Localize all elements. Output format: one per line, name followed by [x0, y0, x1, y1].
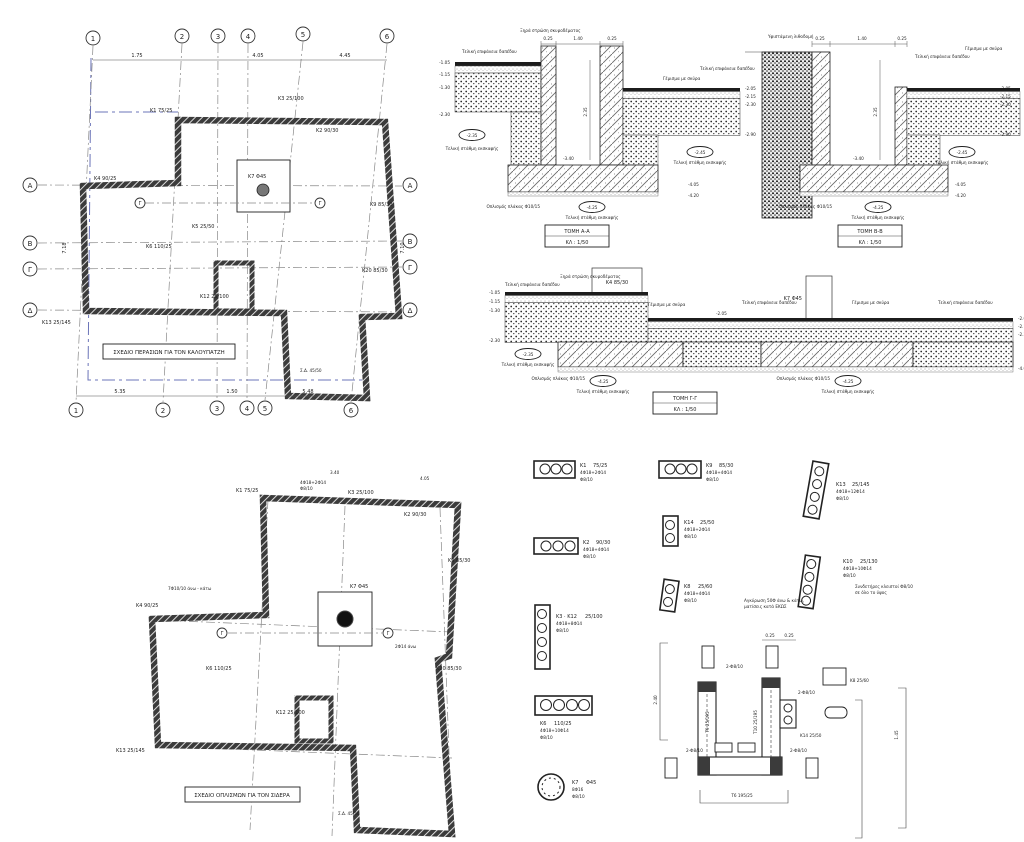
- rebar-callout: 4Φ18+2Φ14: [300, 480, 326, 485]
- level-value: -4.25: [598, 379, 609, 384]
- dim-label: 7.18: [62, 242, 68, 253]
- col-section-k3-k12: Κ3 · Κ12 25/100 4Φ18+8Φ14 Φ8/10: [535, 605, 603, 669]
- col-bars: 4Φ18+8Φ14: [556, 621, 582, 626]
- col-size: 25/145: [852, 482, 870, 488]
- elev-label: -1.05: [489, 290, 500, 295]
- gravel-fill: [648, 329, 1013, 343]
- dim-label: 2.40: [653, 695, 658, 705]
- leader-text: Τελική στάθμη εκσκαφής: [576, 389, 630, 394]
- col-bars: 8Φ16: [572, 787, 584, 792]
- col-bars: 4Φ18+12Φ14: [836, 489, 865, 494]
- section-c: Κ4 85/30 Κ7 Φ45 -1.05 -1.15 -1.30 -2.30 …: [489, 268, 1024, 414]
- leader-text: Τελική στάθμη εκσκαφής: [673, 160, 727, 165]
- leader-text: Γέμισμα με σκύρα: [852, 300, 890, 305]
- col-bars: 4Φ18+4Φ14: [684, 591, 710, 596]
- col-bars: 4Φ18+2Φ14: [580, 470, 606, 475]
- leader-text: Τελική επιφάνεια δαπέδου: [699, 66, 755, 71]
- rebar-callout: 7Φ10/10 άνω - κάτω: [168, 586, 212, 591]
- stair-shaft-walls: [216, 263, 252, 311]
- section-title: ΤΟΜΗ Γ-Γ: [672, 396, 697, 402]
- top-dimension: 0.25 1.40 0.25: [812, 36, 907, 47]
- pit-wall-left: [812, 52, 830, 165]
- bedding-layer: [623, 92, 740, 99]
- lean-concrete: [508, 192, 658, 196]
- section-mark: Γ: [139, 201, 142, 207]
- col-section-k9: Κ9 85/30 4Φ18+4Φ14 Φ8/10: [659, 461, 733, 482]
- dim-label: 1.45: [894, 730, 899, 740]
- exterior-walls: [152, 498, 458, 834]
- column-label: Κ9 85/30: [448, 558, 470, 564]
- dim-label: 4.05: [252, 53, 263, 59]
- col-ties: Φ8/10: [684, 598, 697, 603]
- elev-label: -2.05: [745, 86, 756, 91]
- dim-label: 2.35: [873, 107, 878, 117]
- leader-text: Οπλισμός πλάκας Φ10/15: [486, 204, 540, 209]
- grid-label: 6: [385, 33, 390, 41]
- grid-label: 5: [301, 31, 305, 39]
- grid-lines: [155, 500, 452, 836]
- elev-label: -4.05: [955, 182, 966, 187]
- note-line: Αγκύρωση 50Φ άνω & κάτω,: [744, 598, 804, 603]
- formwork-plan: Γ Γ 1 2 3 4 5 6 1 2 3 4 5 6 Α Β Γ Δ Α Β …: [23, 27, 417, 417]
- elevation-marks-right: -2.05 -2.15 -2.30 -2.90: [745, 86, 756, 137]
- dim-label: 2.35: [583, 107, 588, 117]
- leader-text: Γέμισμα με σκύρα: [965, 46, 1003, 51]
- bedding-layer: [455, 66, 541, 73]
- col-ties: Φ8/10: [843, 573, 856, 578]
- lean-concrete: [558, 367, 1013, 372]
- note-line: Συνδετήρες κλειστοί Φ8/10: [855, 584, 913, 589]
- leader-text: Τελική στάθμη εκσκαφής: [445, 146, 499, 151]
- col-size: 25/50: [700, 520, 714, 526]
- elev-label: -1.30: [439, 85, 450, 90]
- elev-label: -2.30: [489, 338, 500, 343]
- column-above-k7: [806, 276, 832, 320]
- dim-label: 1.75: [131, 53, 142, 59]
- gravel-fill: [623, 135, 658, 165]
- column-label: Κ5 25/50: [192, 224, 214, 230]
- section-mark: Γ: [319, 201, 322, 207]
- col-section-k1: Κ1 75/25 4Φ18+2Φ14 Φ8/10: [534, 461, 607, 482]
- structural-drawing: Γ Γ 1 2 3 4 5 6 1 2 3 4 5 6 Α Β Γ Δ Α Β …: [0, 0, 1024, 842]
- elevation-marks-left: -1.05 -1.15 -1.30 -2.30: [489, 290, 500, 343]
- elev-label: -3.40: [853, 156, 864, 161]
- col-section-k6: Κ6 110/25 4Φ18+10Φ14 Φ8/10: [535, 696, 592, 740]
- column-label: Κ7 Φ45: [248, 174, 266, 180]
- foundation-slab: [800, 165, 948, 192]
- col-bars: 4Φ18+4Φ14: [706, 470, 732, 475]
- col-ties: Φ8/10: [540, 735, 553, 740]
- column-label: Κ6 110/25: [206, 666, 232, 672]
- section-title: ΤΟΜΗ Α-Α: [563, 229, 590, 235]
- column-label: Κ9 85/30: [370, 202, 392, 208]
- leader-text: Ξηρά στρώση σκυροδέματος: [520, 28, 581, 33]
- shaft-reinforcement-detail: Τ9 25/195 Τ10 25/195 Τ6 195/25 Κ8 25/60 …: [653, 633, 906, 838]
- property-boundary-line: [88, 58, 362, 380]
- grid-label: Γ: [28, 266, 32, 274]
- wall-label: Τ9 25/195: [705, 711, 710, 734]
- column-label: Κ20 85/30: [436, 666, 462, 672]
- col-section-k8: [660, 579, 679, 612]
- elev-label: -2.90: [1000, 132, 1011, 137]
- dim-label: 0.25: [765, 633, 775, 638]
- col-size: 25/60: [698, 584, 712, 590]
- section-scale: ΚΛ : 1/50: [674, 407, 697, 413]
- level-value: -2.35: [523, 352, 534, 357]
- level-value: -4.25: [587, 205, 598, 210]
- wall-label: Τ6 195/25: [730, 793, 753, 798]
- column-label: Κ12 25/100: [276, 710, 305, 716]
- section-scale: ΚΛ : 1/50: [566, 240, 589, 246]
- col-size: 25/130: [860, 559, 878, 565]
- col-size: 90/30: [596, 540, 610, 546]
- elev-label: -2.15: [1018, 324, 1024, 329]
- grid-label: 4: [246, 33, 251, 41]
- tie-label: 2-Φ8/10: [790, 748, 807, 753]
- round-column-k7: [257, 184, 269, 196]
- dim-note: Σ.Δ. 45/50: [338, 811, 360, 816]
- floor-finish-strip: [623, 88, 740, 92]
- col-ties: Φ8/10: [572, 794, 585, 799]
- leader-text: Υφιστάμενη λιθοδομή: [767, 34, 814, 39]
- plan-title: ΣΧΕΔΙΟ ΠΕΡΑΣΙΩΝ ΓΙΑ ΤΟΝ ΚΑΛΟΥΠΑΤΖΗ: [113, 350, 225, 356]
- level-value: -4.25: [873, 205, 884, 210]
- dim-label: 5.48: [302, 389, 313, 395]
- level-value: -2.45: [957, 150, 968, 155]
- note-line: ματίσεις κατά ΕΚΩΣ: [744, 604, 787, 609]
- grid-bubbles-left: Α Β Γ Δ: [23, 178, 37, 317]
- dim-label: 4.45: [339, 53, 350, 59]
- grid-label: Β: [28, 240, 33, 248]
- foundation-slab: [508, 165, 658, 192]
- level-value: -4.25: [843, 379, 854, 384]
- level-value: -2.45: [695, 150, 706, 155]
- leader-text: Οπλισμός πλάκας Φ10/15: [776, 376, 830, 381]
- col-name: Κ3 · Κ12: [556, 614, 577, 620]
- column-label: Κ7 Φ45: [350, 584, 368, 590]
- column-label: Κ8 25/60: [850, 678, 869, 683]
- col-size: 75/25: [593, 463, 607, 469]
- column-label: Κ6 110/25: [146, 244, 172, 250]
- gravel-fill: [623, 99, 740, 136]
- level-value: -2.35: [467, 133, 478, 138]
- grid-label: 4: [245, 405, 250, 413]
- grid-label: Δ: [408, 307, 413, 315]
- pit-wall-right: [600, 46, 623, 165]
- section-title: ΤΟΜΗ Β-Β: [856, 229, 883, 235]
- col-ties: Φ8/10: [556, 628, 569, 633]
- grid-label: 3: [216, 33, 220, 41]
- elev-label: -2.05: [716, 311, 727, 316]
- footing-gravel: [683, 342, 761, 367]
- wall-end-zone: [698, 682, 716, 692]
- leader-text: Τελική στάθμη εκσκαφής: [565, 215, 619, 220]
- top-dimension: 0.25 1.40 0.25: [541, 36, 623, 47]
- elev-label: -2.30: [745, 102, 756, 107]
- col-name: Κ9: [706, 463, 712, 469]
- elev-label: -2.05: [1000, 86, 1011, 91]
- col-size: 110/25: [554, 721, 572, 727]
- column-label: Κ2 90/30: [316, 128, 338, 134]
- dim-label: 0.25: [784, 633, 794, 638]
- col-name: Κ1: [580, 463, 586, 469]
- floor-finish-strip: [648, 318, 1013, 322]
- rebar-callout: Φ8/10: [300, 486, 313, 491]
- elevation-marks-right: -2.05 -2.15 -2.30 -4.05: [1018, 316, 1024, 371]
- section-mark: Γ: [387, 631, 390, 637]
- elev-label: -2.30: [1018, 332, 1024, 337]
- wall-end-zone: [698, 757, 710, 775]
- leader-text: Οπλισμός πλάκας Φ10/15: [778, 204, 832, 209]
- column-label: Κ14 25/50: [800, 733, 822, 738]
- col-ties: Φ8/10: [583, 554, 596, 559]
- footing-concrete: [558, 342, 683, 367]
- rebar-callouts: 4Φ18+2Φ14 Φ8/10 7Φ10/10 άνω - κάτω 2Φ14 …: [168, 470, 430, 816]
- column-label: Κ4 85/30: [606, 280, 628, 286]
- note-line: σε όλο το ύψος: [855, 590, 887, 595]
- lean-concrete: [800, 192, 948, 196]
- elev-label: -3.40: [563, 156, 574, 161]
- dim-label: 0.25: [607, 36, 617, 41]
- col-ties: Φ8/10: [706, 477, 719, 482]
- section-b: 0.25 1.40 0.25 2.35 Υφιστάμενη λιθοδομή …: [745, 34, 1020, 247]
- dim-label: 3.40: [330, 470, 340, 475]
- leader-text: Γέμισμα με σκύρα: [663, 76, 701, 81]
- grid-label: 5: [263, 405, 267, 413]
- col-section-k2: Κ2 90/30 4Φ18+4Φ14 Φ8/10: [534, 538, 610, 559]
- dim-label: 5.35: [114, 389, 125, 395]
- wall-end-zone: [770, 757, 782, 775]
- leader-text: Οπλισμός πλάκας Φ10/15: [531, 376, 585, 381]
- section-mark: Γ: [221, 631, 224, 637]
- elev-label: -1.15: [489, 299, 500, 304]
- wall-t6: [698, 757, 782, 775]
- round-column-k7: [337, 611, 353, 627]
- leader-text: Τελική επιφάνεια δαπέδου: [504, 282, 560, 287]
- elev-label: -2.05: [1018, 316, 1024, 321]
- elev-label: -4.05: [1018, 366, 1024, 371]
- elev-label: -2.15: [1000, 94, 1011, 99]
- elev-label: -2.15: [745, 94, 756, 99]
- dim-note: Σ.Δ. 45/50: [300, 368, 322, 373]
- elev-label: -1.15: [439, 72, 450, 77]
- grid-label: Α: [28, 182, 33, 190]
- elev-label: -2.30: [1000, 102, 1011, 107]
- tie-label: 2-Φ8/10: [726, 664, 743, 669]
- column-label: Κ13 25/145: [42, 320, 71, 326]
- col-name: Κ10: [843, 559, 853, 565]
- leader-text: Τελική επιφάνεια δαπέδου: [914, 54, 970, 59]
- leader-text: Τελική επιφάνεια δαπέδου: [937, 300, 993, 305]
- elev-label: -4.20: [688, 193, 699, 198]
- floor-finish-strip: [455, 62, 541, 66]
- dim-label: 0.25: [815, 36, 825, 41]
- grid-label: 2: [180, 33, 184, 41]
- stair-shaft-walls: [297, 698, 331, 741]
- leader-text: Τελική επιφάνεια δαπέδου: [741, 300, 797, 305]
- grid-label: Δ: [28, 307, 33, 315]
- col-ties: Φ8/10: [580, 477, 593, 482]
- dim-label: 1.40: [573, 36, 583, 41]
- wall-label: Τ10 25/195: [753, 710, 758, 735]
- leader-text: Γέμισμα με σκύρα: [648, 302, 686, 307]
- column-label: Κ13 25/145: [116, 748, 145, 754]
- dim-label: 4.05: [420, 476, 430, 481]
- col-size: 85/30: [719, 463, 733, 469]
- leader-text: Τελική στάθμη εκσκαφής: [501, 362, 555, 367]
- col-name: Κ13: [836, 482, 846, 488]
- rebar-callout: 2Φ14 άνω: [395, 644, 417, 649]
- column-label: Κ3 25/100: [348, 490, 374, 496]
- bedding-layer: [505, 296, 648, 303]
- tie-label: 2-Φ8/10: [686, 748, 703, 753]
- col-size: 25/100: [585, 614, 603, 620]
- leader-text: Τελική στάθμη εκσκαφής: [851, 215, 905, 220]
- gravel-fill: [511, 112, 541, 165]
- col-size: Φ45: [586, 780, 596, 786]
- dim-label: 0.25: [543, 36, 553, 41]
- grid-label: Γ: [408, 264, 412, 272]
- grid-label: Α: [408, 182, 413, 190]
- pit-wall-left: [541, 46, 556, 165]
- bedding-layer: [648, 322, 1013, 329]
- elev-label: -2.30: [439, 112, 450, 117]
- col-ties: Φ8/10: [684, 534, 697, 539]
- elev-label: -4.05: [688, 182, 699, 187]
- footing-concrete: [761, 342, 913, 367]
- elev-label: -2.90: [745, 132, 756, 137]
- wall-end-zone: [762, 678, 780, 688]
- elev-label: -1.05: [439, 60, 450, 65]
- grid-label: Β: [408, 238, 413, 246]
- rebar-plan: Γ Γ 4Φ18+2Φ14 Φ8/10 7Φ10/10 άνω - κάτω 2…: [116, 470, 470, 836]
- col-bars: 4Φ18+10Φ14: [843, 566, 872, 571]
- grid-label: 3: [215, 405, 219, 413]
- plan-title: ΣΧΕΔΙΟ ΟΠΛΙΣΜΩΝ ΓΙΑ ΤΟΝ ΣΙΔΕΡΑ: [194, 793, 290, 799]
- column-label: Κ12 25/100: [200, 294, 229, 300]
- column-label: Κ1 75/25: [236, 488, 258, 494]
- column-label: Κ2 90/30: [404, 512, 426, 518]
- footing-gravel: [913, 342, 1013, 367]
- column-label: Κ3 25/100: [278, 96, 304, 102]
- col-section-k13: [803, 461, 828, 519]
- gravel-fill: [455, 73, 541, 112]
- leader-text: Τελική στάθμη εκσκαφής: [935, 160, 989, 165]
- column-label: Κ20 85/30: [362, 268, 388, 274]
- gravel-fill: [505, 303, 648, 343]
- elev-label: -4.20: [955, 193, 966, 198]
- column-notes: Αγκύρωση 50Φ άνω & κάτω, ματίσεις κατά Ε…: [744, 584, 913, 609]
- col-ties: Φ8/10: [836, 496, 849, 501]
- col-name: Κ7: [572, 780, 578, 786]
- grid-label: 1: [91, 35, 95, 43]
- col-name: Κ6: [540, 721, 546, 727]
- col-name: Κ2: [583, 540, 589, 546]
- leader-text: Ξηρά στρώση σκυροδέματος: [560, 274, 621, 279]
- col-bars: 4Φ18+2Φ14: [684, 527, 710, 532]
- col-bars: 4Φ18+10Φ14: [540, 728, 569, 733]
- grid-bubbles-bottom: 1 2 3 4 5 6: [69, 401, 358, 417]
- drawing-sheet: Γ Γ 1 2 3 4 5 6 1 2 3 4 5 6 Α Β Γ Δ Α Β …: [0, 0, 1024, 842]
- leader-text: Τελική επιφάνεια δαπέδου: [461, 49, 517, 54]
- col-bars: 4Φ18+4Φ14: [583, 547, 609, 552]
- elevation-marks-left: -1.05 -1.15 -1.30 -2.30: [439, 60, 450, 117]
- grid-bubbles-top: 1 2 3 4 5 6: [86, 27, 394, 45]
- leader-text: Τελική στάθμη εκσκαφής: [821, 389, 875, 394]
- column-label: Κ1 75/25: [150, 108, 172, 114]
- dim-label: 1.40: [857, 36, 867, 41]
- tie-label: 2-Φ8/10: [798, 690, 815, 695]
- column-label: Κ4 90/25: [94, 176, 116, 182]
- col-name: Κ14: [684, 520, 694, 526]
- dim-label: 1.50: [226, 389, 237, 395]
- dim-label: 7.10: [400, 242, 406, 253]
- col-section-k7-round: Κ7 Φ45 8Φ16 Φ8/10: [538, 774, 596, 800]
- grid-label: 2: [161, 407, 165, 415]
- dim-label: 0.25: [897, 36, 907, 41]
- floor-finish-strip: [505, 292, 648, 296]
- dimension-brackets: [660, 640, 906, 838]
- section-scale: ΚΛ : 1/50: [859, 240, 882, 246]
- col-name: Κ8: [684, 584, 690, 590]
- grid-label: 1: [74, 407, 78, 415]
- col-section-k14: Κ14 25/50 4Φ18+2Φ14 Φ8/10: [663, 516, 714, 546]
- grid-label: 6: [349, 407, 354, 415]
- pit-wall-right: [895, 87, 907, 165]
- elev-label: -1.30: [489, 308, 500, 313]
- section-a: 0.25 1.40 0.25 2.35 -1.05 -1.15 -1.30 -2…: [439, 28, 756, 247]
- column-label: Κ4 90/25: [136, 603, 158, 609]
